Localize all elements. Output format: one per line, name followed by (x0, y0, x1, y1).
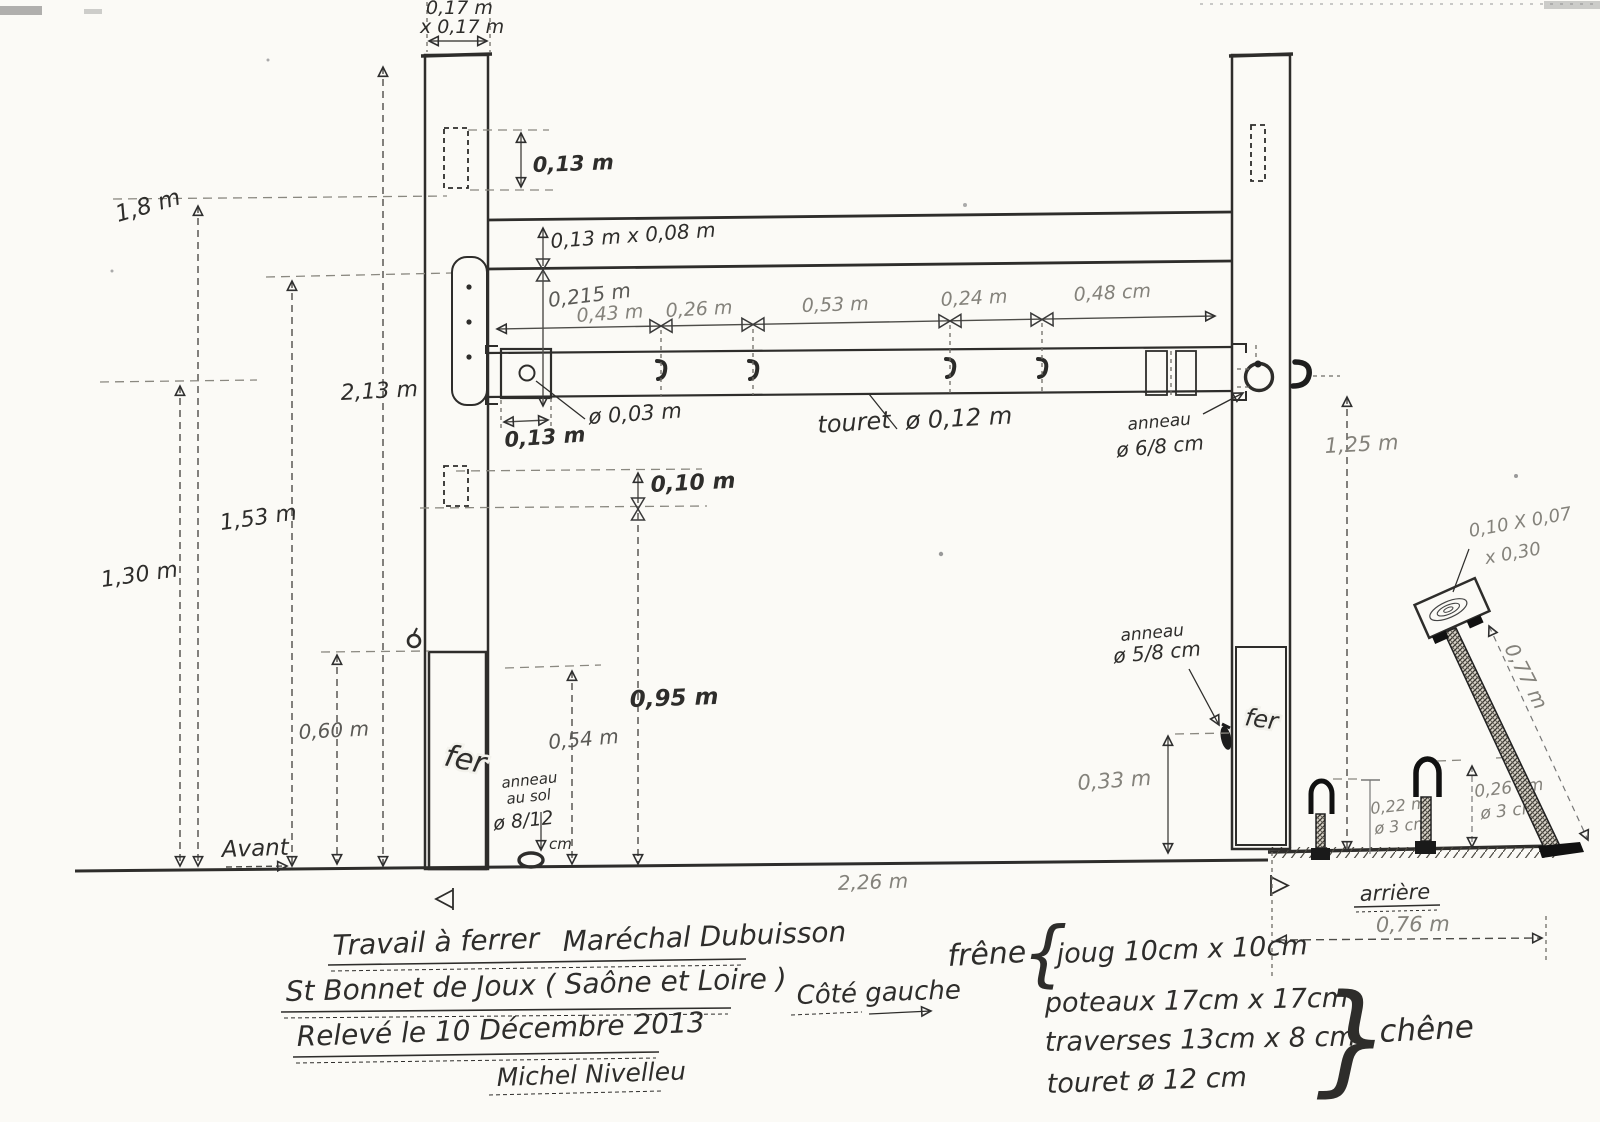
height-label-1-53: 1,53 m (218, 500, 298, 536)
side-view-label: Côté gauche (796, 975, 961, 1011)
title-line1a: Travail à ferrer (332, 922, 541, 962)
height-label-1-30: 1,30 m (99, 557, 179, 593)
height-label-0-60: 0,60 m (298, 716, 370, 744)
span-label: 2,26 m (837, 869, 908, 895)
scanned-sketch-page: fer fer (0, 0, 1600, 1122)
rear-width-dim: 0,76 m (1272, 852, 1546, 977)
right-iron-plate-label: fer (1243, 703, 1282, 736)
height-label-2-13: 2,13 m (340, 377, 419, 406)
wood-frame-label: frêne (947, 935, 1028, 974)
left-post-ring-icon (408, 635, 420, 647)
traverse-section-label: 0,13 m x 0,08 m (550, 218, 717, 253)
ground-labels: Avant 2,26 m arrière (219, 835, 1440, 912)
touret-dia-label: ø 0,12 m (904, 401, 1013, 435)
material-touret: touret ø 12 cm (1046, 1062, 1247, 1100)
signature: Michel Nivelleu (496, 1056, 686, 1092)
support-length-label: 0,77 m (1500, 639, 1553, 713)
hinge-strap (452, 257, 487, 405)
segment-dim-label: 0,48 cm (1073, 280, 1151, 306)
right-iron-plate (1236, 647, 1286, 845)
beam-ring-label-2: ø 6/8 cm (1114, 430, 1204, 462)
ring-annotations: anneau ø 6/8 cm anneau ø 5/8 cm anneau a… (491, 393, 1243, 867)
beam-ring-icon (1246, 364, 1273, 391)
shoeing-stock-drawing: fer fer (0, 0, 1600, 1122)
left-post: fer (408, 54, 492, 869)
ground-ring-label-3: ø 8/12 (491, 807, 554, 835)
segment-dim-label: 0,24 m (940, 286, 1008, 311)
material-poteaux: poteaux 17cm x 17cm (1044, 983, 1349, 1019)
ground (75, 846, 1557, 910)
post-section-label-2: x 0,17 m (419, 16, 504, 38)
right-post: fer (1219, 54, 1340, 849)
ground-ring-label-4: cm (549, 835, 572, 853)
title-line3: Relevé le 10 Décembre 2013 (296, 1006, 705, 1053)
axle-dia-label: ø 0,03 m (587, 399, 683, 430)
material-traverses: traverses 13cm x 8 cm (1045, 1022, 1356, 1058)
left-iron-plate-label: fer (441, 739, 490, 782)
wall-hook-icon (1293, 362, 1309, 386)
materials-block: frêne { joug 10cm x 10cm poteaux 17cm x … (947, 911, 1475, 1109)
axle-and-block-dims: ø 0,03 m 0,13 m touret ø 0,12 m (501, 381, 1013, 452)
title-line1b: Maréchal Dubuisson (562, 915, 847, 958)
post-section-dim: 0,17 m x 0,17 m (419, 0, 504, 52)
height-label-0-10: 0,10 m (650, 469, 736, 498)
segment-dim-label: 0,26 m (665, 297, 733, 322)
support-block-dims-2: x 0,30 (1482, 538, 1542, 569)
wood-posts-label: chêne (1379, 1009, 1475, 1050)
height-label-0-95: 0,95 m (629, 684, 719, 713)
scan-artifacts (0, 1, 1600, 556)
left-post-top-mortise (444, 128, 468, 188)
left-post-foot-mark (436, 888, 453, 910)
height-label-0-33: 0,33 m (1077, 766, 1152, 795)
rear-width-label: 0,76 m (1376, 912, 1450, 937)
front-label: Avant (219, 835, 290, 863)
right-post-top-mortise (1251, 125, 1265, 181)
height-label-1-25: 1,25 m (1324, 430, 1399, 458)
segment-dim-label: 0,53 m (801, 293, 869, 317)
mortise-height-label: 0,13 m (532, 150, 614, 177)
height-dims: 1,8 m 2,13 m 1,53 m 1,30 m 0,60 m 0,54 m… (99, 67, 736, 866)
left-post-mid-mortise (444, 466, 468, 506)
ground-ring-icon (519, 853, 543, 867)
height-label-1-8: 1,8 m (112, 185, 183, 228)
touret-word-label: touret (816, 406, 893, 439)
touret-beam (486, 344, 1246, 404)
top-mortise-dim: 0,13 m (468, 130, 614, 190)
stake-ring-icon (1311, 781, 1332, 814)
stake-ring-icon (1416, 759, 1439, 797)
beam-ring-label-1: anneau (1127, 409, 1192, 434)
ground-ring-label-2: au sol (506, 785, 553, 808)
material-joug: joug 10cm x 10cm (1052, 930, 1308, 970)
support-block-dims-1: 0,10 X 0,07 (1467, 503, 1574, 542)
block-width-label: 0,13 m (504, 422, 586, 452)
axle-pin-icon (520, 366, 535, 381)
height-label-0-54: 0,54 m (547, 724, 619, 754)
right-post-foot-mark (1271, 875, 1288, 896)
title-block: Travail à ferrer Maréchal Dubuisson St B… (281, 915, 961, 1095)
title-line2: St Bonnet de Joux ( Saône et Loire ) (285, 962, 787, 1008)
rear-label: arrière (1359, 880, 1430, 906)
